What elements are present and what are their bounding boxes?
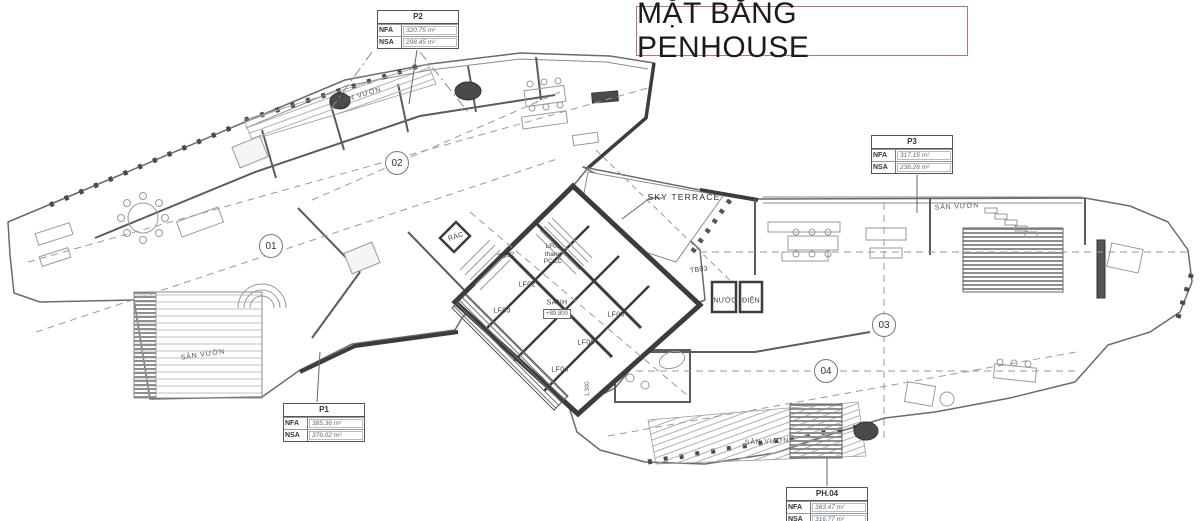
nsa-value-p3: 236.26 m² [897, 163, 951, 172]
grid-marker-02: 02 [385, 151, 409, 175]
unit-info-ph04: PH.04 NFA363.47 m² NSA316.77 m² [786, 487, 868, 521]
water-room-label: NƯỚC [713, 298, 736, 305]
unit-name-p1: P1 [284, 404, 364, 417]
unit-info-p2: P2 NFA320.75 m² NSA298.45 m² [377, 10, 459, 49]
lobby-label: SẢNH [547, 300, 568, 307]
sky-terrace-label: SKY TERRACE [648, 192, 721, 202]
lf03-label: LF03 [493, 308, 510, 315]
unit-name-p3: P3 [872, 136, 952, 149]
nfa-label: NFA [787, 502, 811, 513]
lobby-elevation: +89.800 [543, 309, 571, 319]
lf04-label: LF04 [551, 367, 568, 374]
unit-name-p2: P2 [378, 11, 458, 24]
nfa-label: NFA [872, 150, 896, 161]
unit-info-p1: P1 NFA385.36 m² NSA376.02 m² [283, 403, 365, 442]
lf02-label: LF02 [518, 282, 535, 289]
nsa-value-p1: 376.02 m² [309, 431, 363, 440]
nsa-label: NSA [378, 37, 402, 48]
lf01-sub2: PCCC [544, 258, 562, 266]
nsa-label: NSA [872, 162, 896, 173]
unit-name-ph04: PH.04 [787, 488, 867, 501]
lf06-label: LF06 [607, 312, 624, 319]
lf05-label: LF05 [577, 340, 594, 347]
floor-plan-page: MẶT BẰNG PENHOUSE P2 NFA320.75 m² NSA298… [0, 0, 1200, 521]
nfa-value-p3: 317.15 m² [897, 151, 951, 160]
nsa-label: NSA [787, 514, 811, 521]
electric-room-label: ĐIỆN [742, 298, 760, 305]
lf01-sub1: thang [544, 250, 562, 258]
drawing-title-box: MẶT BẰNG PENHOUSE [636, 6, 968, 56]
unit-info-p3: P3 NFA317.15 m² NSA236.26 m² [871, 135, 953, 174]
grid-marker-01: 01 [259, 234, 283, 258]
nsa-value-ph04: 316.77 m² [812, 515, 866, 521]
dimension-1300: 1.300 [585, 381, 591, 396]
nfa-label: NFA [378, 25, 402, 36]
nfa-label: NFA [284, 418, 308, 429]
floor-plan-drawing [0, 0, 1200, 521]
nfa-value-ph04: 363.47 m² [812, 503, 866, 512]
garden-bottomleft-hatch [134, 292, 262, 398]
garden-right-hatch [963, 228, 1063, 292]
grid-marker-03: 03 [872, 313, 896, 337]
grid-marker-04: 04 [814, 359, 838, 383]
drawing-title: MẶT BẰNG PENHOUSE [637, 0, 967, 65]
nfa-value-p2: 320.75 m² [403, 26, 457, 35]
nsa-value-p2: 298.45 m² [403, 38, 457, 47]
lf01-name: LF01 [544, 243, 562, 251]
nfa-value-p1: 385.36 m² [309, 419, 363, 428]
lf01-stair-label: LF01 thang PCCC [544, 243, 562, 266]
nsa-label: NSA [284, 430, 308, 441]
